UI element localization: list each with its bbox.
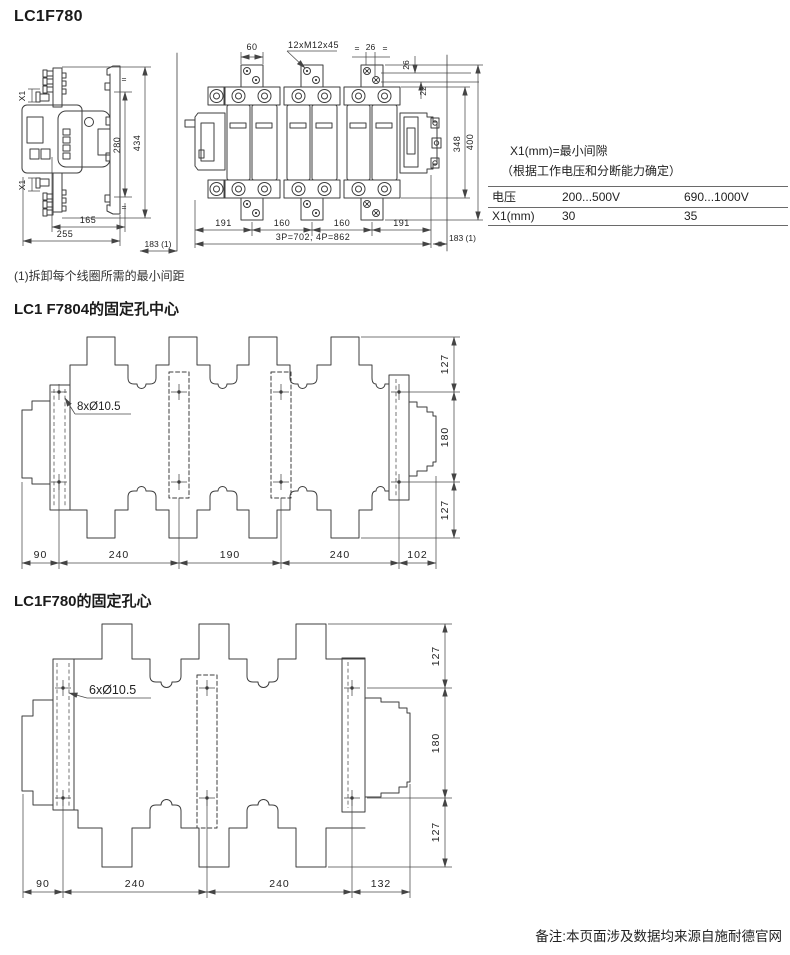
- voltage-range-1: 200...500V: [558, 187, 680, 208]
- dim-240-b: 240: [269, 878, 290, 890]
- voltage-row-label: 电压: [488, 187, 558, 208]
- dim-255: 255: [57, 229, 74, 239]
- section-f780-title: LC1F780的固定孔心: [14, 590, 152, 611]
- dim-180: 180: [439, 427, 451, 448]
- f7804-outline: [22, 337, 436, 538]
- x1-row-label: X1(mm): [488, 208, 558, 226]
- dim-190: 190: [220, 549, 241, 561]
- side-view-drawing: X1 X1 = = 280 434 165 255 183 (1): [10, 45, 185, 260]
- dim-127-top: 127: [430, 646, 442, 667]
- dim-102: 102: [407, 549, 428, 561]
- dim-160-a: 160: [274, 218, 291, 228]
- dim-165: 165: [80, 215, 97, 225]
- dim-400: 400: [465, 134, 475, 151]
- dim-160-b: 160: [334, 218, 351, 228]
- dim-240-a: 240: [125, 878, 146, 890]
- f780-fixing-holes-drawing: 6xØ10.5 90 240 240 132 127 180 127: [15, 612, 480, 907]
- table-row: 电压 200...500V 690...1000V: [488, 187, 788, 208]
- x1-value-2: 35: [680, 208, 788, 226]
- dim-183-left: 183 (1): [145, 239, 172, 249]
- x1-note-line2: （根据工作电压和分断能力确定）: [501, 162, 788, 179]
- dim-90: 90: [36, 878, 50, 890]
- dim-90: 90: [34, 549, 48, 561]
- footnote-1: (1)拆卸每个线圈所需的最小间距: [14, 267, 185, 284]
- dim-280: 280: [112, 137, 122, 154]
- hole-size-label: 6xØ10.5: [89, 683, 136, 697]
- f780-dimensions: 90 240 240 132 127 180 127: [23, 624, 452, 898]
- front-pole-3: [344, 65, 400, 220]
- x1-note-line1: X1(mm)=最小间隙: [510, 142, 788, 159]
- table-row: X1(mm) 30 35: [488, 208, 788, 226]
- dim-240-a: 240: [109, 549, 130, 561]
- dim-191-right: 191: [393, 218, 410, 228]
- dim-127-bottom: 127: [430, 822, 442, 843]
- screw-spec-label: 12xM12x45: [288, 40, 339, 50]
- dim-26-pitch: 26: [366, 42, 376, 52]
- dim-132: 132: [371, 878, 392, 890]
- dim-eq-right: =: [383, 43, 388, 53]
- dim-eq-top: =: [122, 74, 127, 84]
- dim-348: 348: [452, 136, 462, 153]
- source-note: 备注:本页面涉及数据均来源自施耐德官网: [535, 925, 782, 945]
- side-body: [22, 105, 110, 173]
- front-dimensions: 60 12xM12x45 = 26 = 26 22 348 400 191 1: [195, 40, 483, 251]
- dim-60: 60: [246, 42, 257, 52]
- dim-22: 22: [418, 86, 428, 96]
- dim-434: 434: [132, 135, 142, 152]
- f7804-dimensions: 90 240 190 240 102 127 180 127: [22, 337, 460, 569]
- dim-eq-bottom: =: [122, 202, 127, 212]
- dim-127-top: 127: [439, 354, 451, 375]
- voltage-range-2: 690...1000V: [680, 187, 788, 208]
- side-top-terminals: [36, 68, 66, 107]
- x1-table: 电压 200...500V 690...1000V X1(mm) 30 35: [488, 186, 788, 226]
- dim-191-left: 191: [215, 218, 232, 228]
- dim-183-right: 183 (1): [449, 233, 476, 243]
- x1-value-1: 30: [558, 208, 680, 226]
- front-pole-2: [284, 65, 340, 220]
- f780-holes: 6xØ10.5: [55, 680, 360, 806]
- dim-180: 180: [430, 733, 442, 754]
- dim-x1-top: X1: [17, 91, 27, 102]
- dim-eq-left: =: [355, 43, 360, 53]
- dim-x1-bottom: X1: [17, 180, 27, 191]
- front-view-drawing: 60 12xM12x45 = 26 = 26 22 348 400 191 1: [185, 38, 490, 268]
- section-f7804-title: LC1 F7804的固定孔中心: [14, 298, 179, 319]
- front-pole-1: [224, 65, 280, 220]
- page-title: LC1F780: [14, 8, 83, 26]
- front-left-flange: [185, 113, 225, 170]
- f7804-mounting-rails: [50, 372, 409, 510]
- hole-size-label: 8xØ10.5: [77, 401, 120, 413]
- front-left-terminal-plates: [208, 87, 225, 198]
- f7804-fixing-holes-drawing: 8xØ10.5 90 240 190 240 102 127 180 127: [15, 332, 480, 574]
- dim-240-b: 240: [330, 549, 351, 561]
- x1-table-block: X1(mm)=最小间隙 （根据工作电压和分断能力确定） 电压 200...500…: [488, 142, 788, 226]
- front-coil-block: [400, 113, 441, 173]
- side-bottom-terminals: [36, 173, 66, 216]
- dim-total-width: 3P=702, 4P=862: [276, 232, 351, 242]
- f7804-holes: 8xØ10.5: [51, 384, 407, 490]
- dim-127-bottom: 127: [439, 500, 451, 521]
